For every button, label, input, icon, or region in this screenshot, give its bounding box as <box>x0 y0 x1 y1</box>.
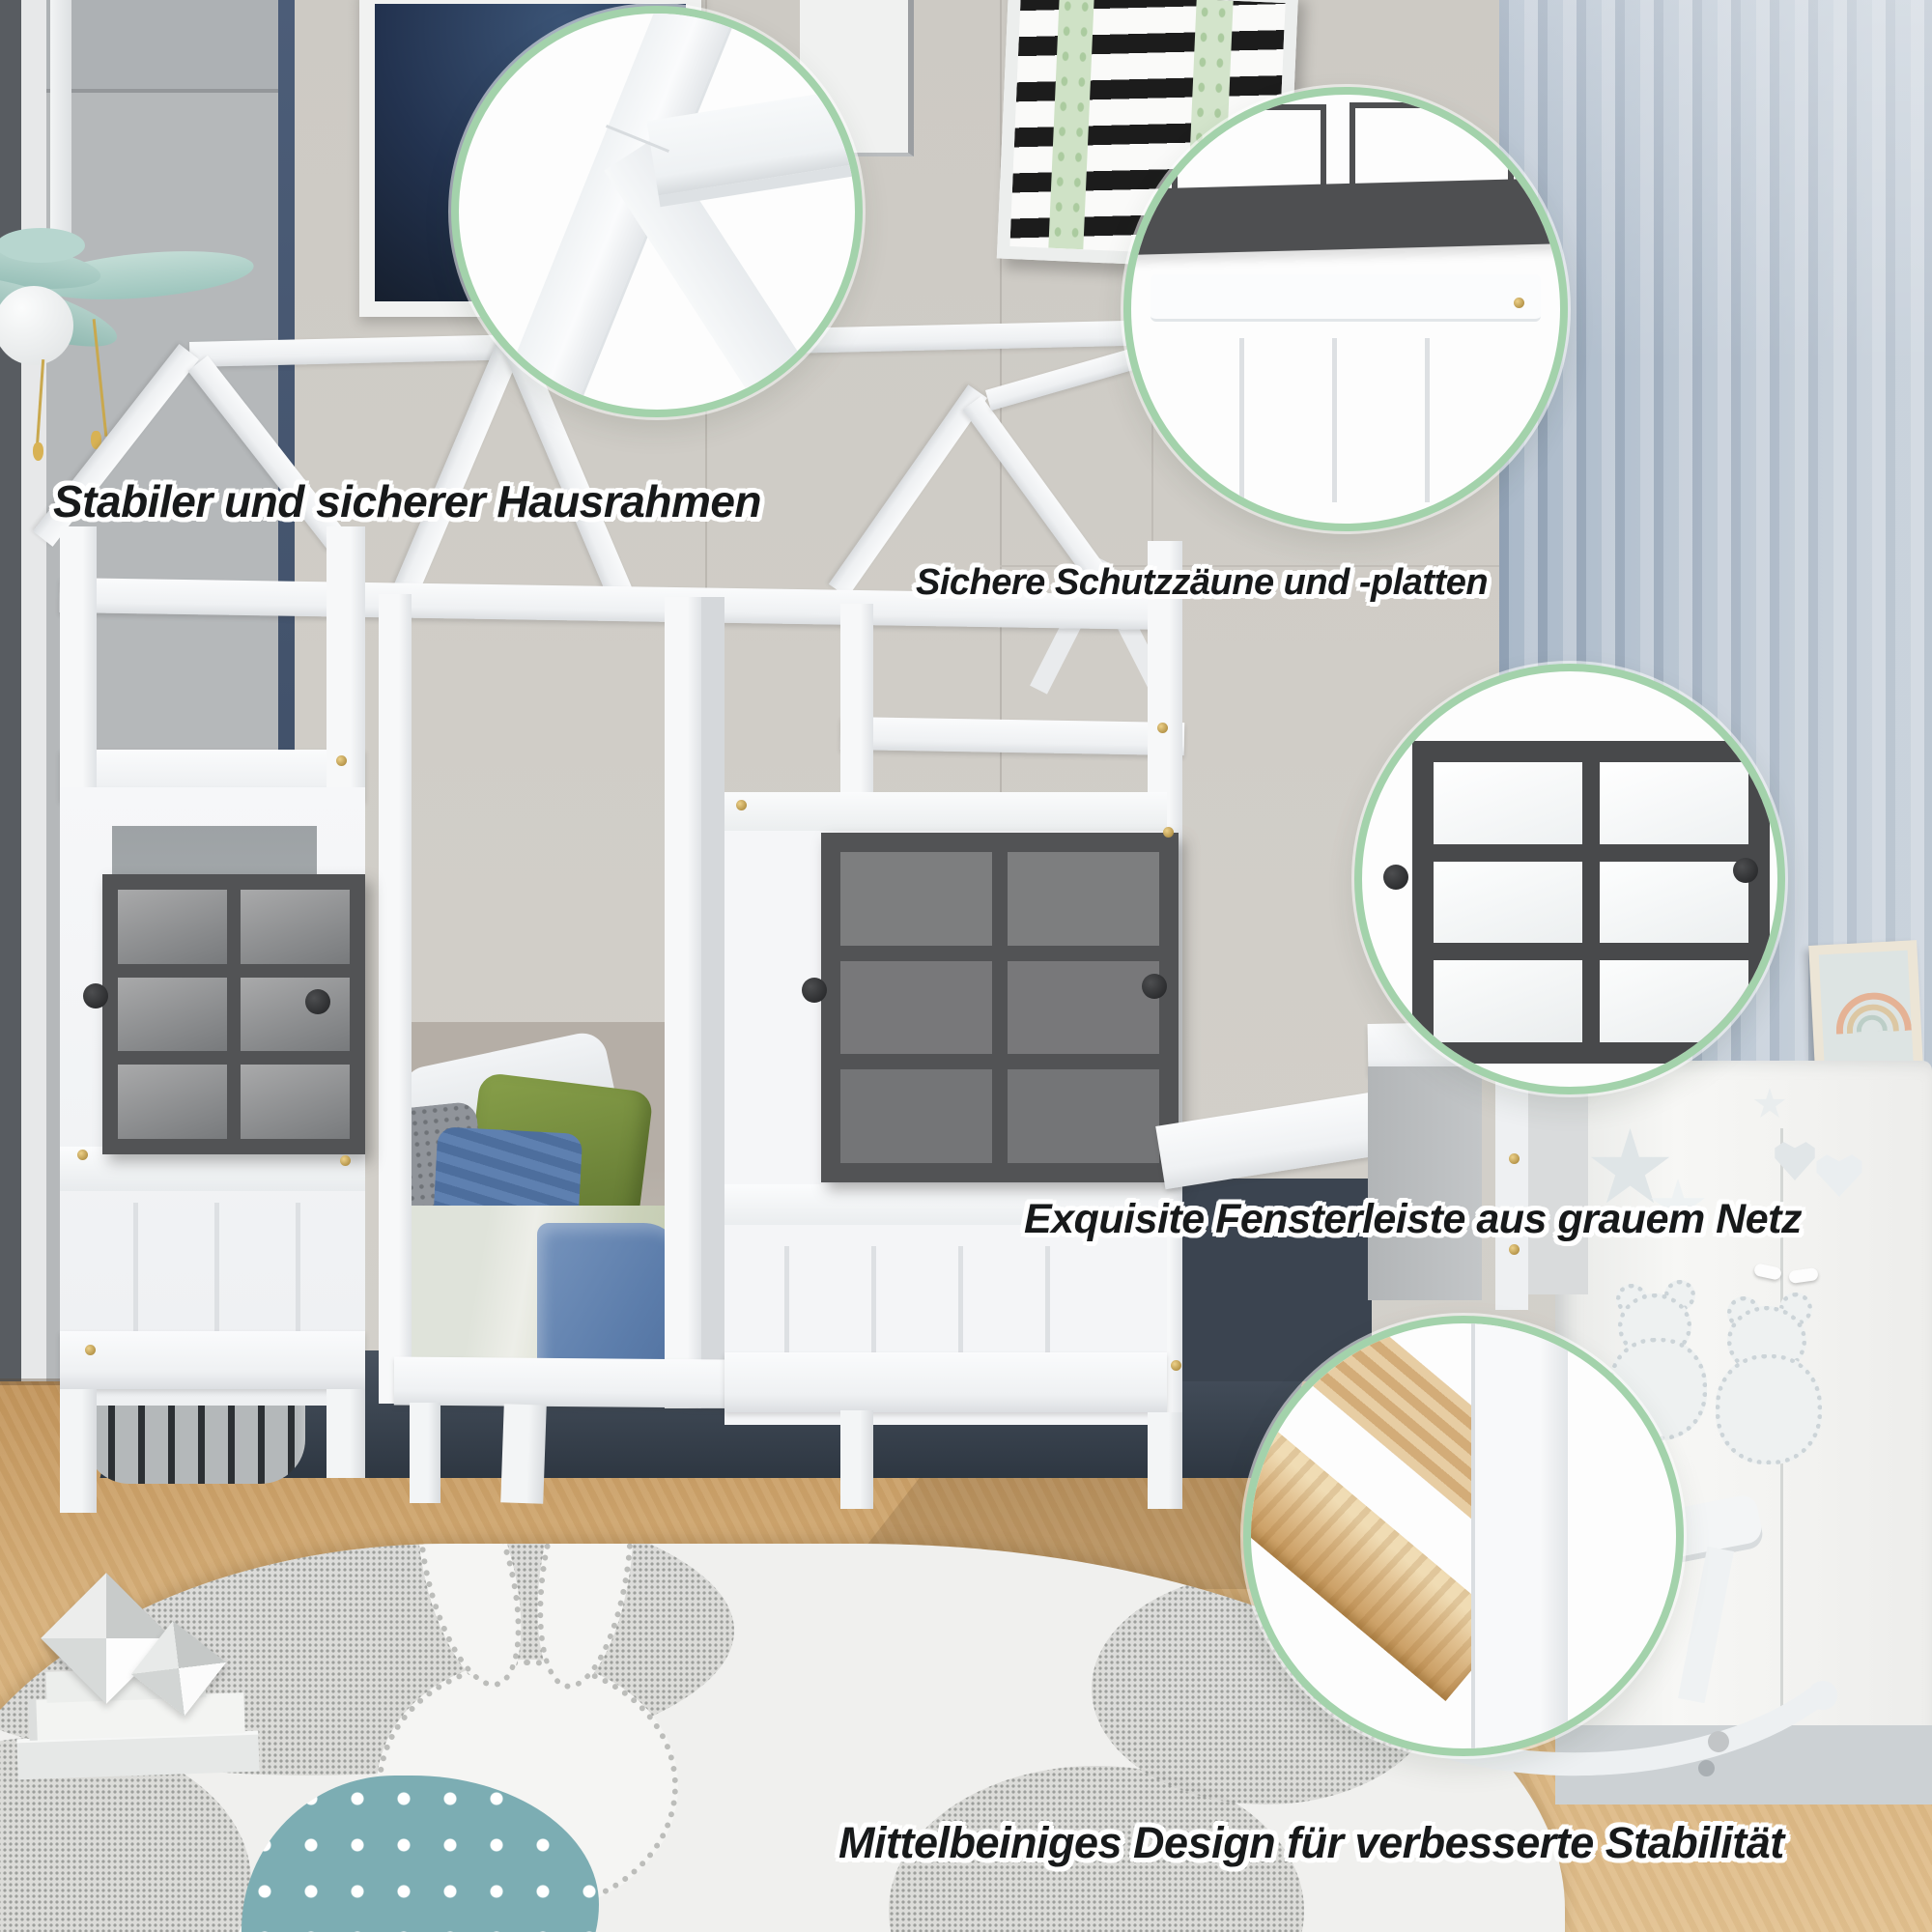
panel-groove <box>1425 338 1430 502</box>
window-pane <box>840 852 992 946</box>
bed-leg <box>1148 1412 1182 1509</box>
footboard-white-post <box>1495 1066 1528 1310</box>
window-pane <box>241 978 350 1052</box>
bed-opening-backdrop <box>394 1022 679 1404</box>
window-pane <box>118 978 227 1052</box>
bed-leg <box>327 1389 365 1478</box>
rocking-horse-rocker-tip <box>1808 1681 1837 1710</box>
wardrobe-heart-left <box>1773 1140 1817 1180</box>
window-pane <box>1434 762 1582 844</box>
screw-icon <box>1163 827 1174 838</box>
screw-icon <box>736 800 747 810</box>
window-pane <box>241 890 350 964</box>
footboard-inner-panel <box>1528 1063 1588 1294</box>
screw-icon <box>85 1345 96 1355</box>
screw-icon <box>1514 298 1524 308</box>
right-upper-rail <box>840 717 1185 755</box>
callout-roof-joint <box>451 6 863 417</box>
bear-body-icon <box>1716 1354 1822 1464</box>
window-pane <box>241 1065 350 1139</box>
window-knob-left <box>83 983 108 1009</box>
center-bottom-rail <box>394 1357 724 1408</box>
post-middle-right-side-face <box>701 597 724 1408</box>
wardrobe-handle-left <box>1753 1263 1782 1281</box>
window-knob-left <box>802 978 827 1003</box>
panel-groove <box>1332 338 1337 502</box>
window-pane <box>1434 862 1582 944</box>
footboard-grey-panel <box>1368 1066 1482 1300</box>
fence-top-rail <box>1151 274 1541 322</box>
post-middle-left <box>379 594 412 1404</box>
annotation-center-leg: Mittelbeiniges Design für verbesserte St… <box>838 1818 1784 1868</box>
screw-icon <box>1171 1360 1181 1371</box>
fan-light-ball <box>0 286 73 365</box>
grey-window-left <box>102 874 365 1154</box>
window-pane <box>118 1065 227 1139</box>
window-pane <box>1434 960 1582 1042</box>
guard-bottom-rail <box>724 1352 1167 1412</box>
headboard-bottom-rail <box>60 1331 365 1389</box>
wardrobe-heart-right <box>1814 1152 1864 1197</box>
roof-joint-left-beam <box>498 6 745 417</box>
fan-downrod <box>50 0 71 240</box>
fan-pull-chain-1 <box>36 359 44 448</box>
screw-icon <box>340 1155 351 1166</box>
fence-window-pane-left <box>1172 104 1326 195</box>
callout-center-leg-joint <box>1243 1316 1684 1756</box>
annotation-guard-rails: Sichere Schutzzäune und -platten <box>916 562 1488 604</box>
screw-icon <box>336 755 347 766</box>
bed-leg <box>840 1410 873 1509</box>
wardrobe-handle-right <box>1788 1267 1819 1284</box>
window-knob-right <box>1733 858 1758 883</box>
annotation-window-trim: Exquisite Fensterleiste aus grauem Netz <box>1024 1196 1802 1243</box>
window-pane <box>1008 852 1159 946</box>
callout-headboard-fence <box>1123 87 1568 531</box>
screw-icon <box>1509 1244 1520 1255</box>
window-pane <box>1600 762 1748 844</box>
bedroom-product-photo: Stabiler und sicherer Hausrahmen Sichere… <box>0 0 1932 1932</box>
rocking-horse-caster <box>1708 1731 1729 1752</box>
callout-grey-window-grid <box>1354 664 1785 1094</box>
window-pane <box>1008 961 1159 1055</box>
fan-chain-drop-1 <box>33 442 43 461</box>
fence-window-sill <box>1123 178 1568 255</box>
grey-window-detail <box>1412 741 1770 1064</box>
bed-leg <box>60 1389 97 1513</box>
bed-leg <box>410 1403 440 1503</box>
window-knob-right <box>305 989 330 1014</box>
grey-window-right <box>821 833 1179 1182</box>
fan-cap <box>0 228 85 263</box>
window-knob-left <box>1383 865 1408 890</box>
wardrobe-star-sparkle <box>1753 1088 1786 1121</box>
panel-groove <box>1239 338 1244 502</box>
window-pane <box>1008 1069 1159 1163</box>
annotation-house-frame: Stabiler und sicherer Hausrahmen <box>53 475 761 527</box>
wardrobe-bear-right <box>1710 1293 1835 1466</box>
screw-icon <box>1157 723 1168 733</box>
screw-icon <box>77 1150 88 1160</box>
screw-icon <box>1509 1153 1520 1164</box>
post-middle-right <box>665 597 701 1408</box>
white-leg-detail <box>1471 1323 1568 1748</box>
window-pane <box>840 961 992 1055</box>
window-pane <box>1600 862 1748 944</box>
window-pane <box>840 1069 992 1163</box>
window-knob-right <box>1142 974 1167 999</box>
window-pane <box>118 890 227 964</box>
bed-center-leg <box>500 1404 547 1503</box>
window-pane <box>1600 960 1748 1042</box>
